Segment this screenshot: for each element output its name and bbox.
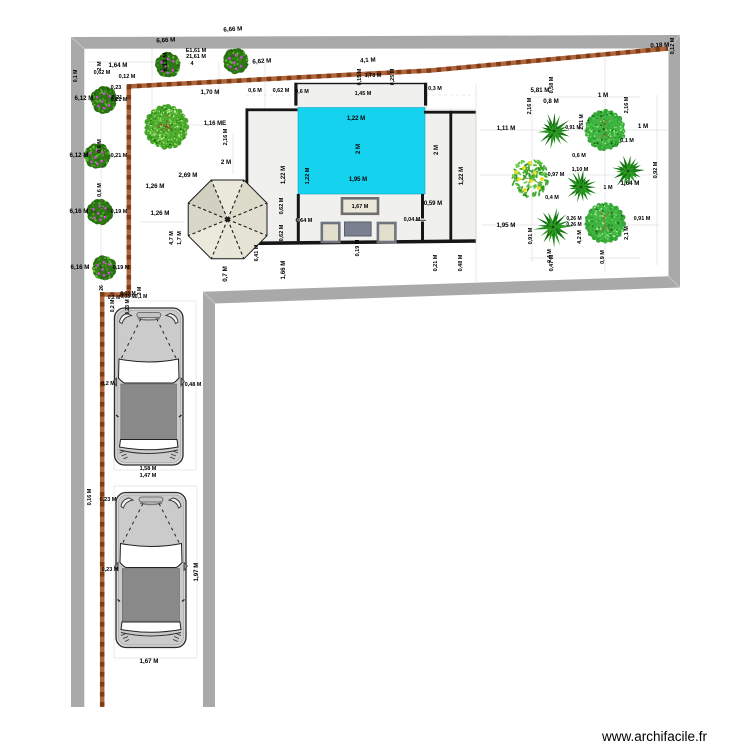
svg-text:2,16 M: 2,16 M [223,128,229,145]
svg-text:0,19 M: 0,19 M [111,209,128,215]
svg-text:1,22 M: 1,22 M [347,116,365,122]
svg-text:1,26 M: 1,26 M [151,210,170,217]
svg-text:0,92 M: 0,92 M [653,161,659,178]
svg-text:0,62 M: 0,62 M [94,70,111,76]
svg-text:0,4 M: 0,4 M [545,195,559,201]
svg-text:6,12 M: 6,12 M [70,152,89,159]
svg-text:0,91 M: 0,91 M [634,216,651,222]
svg-text:0,91 M: 0,91 M [528,227,534,244]
svg-text:0,6 M: 0,6 M [572,153,586,159]
svg-text:1,47 M: 1,47 M [140,473,157,479]
svg-text:0,97 M: 0,97 M [548,172,565,178]
svg-text:2,69 M: 2,69 M [179,172,198,179]
svg-text:1,70 M: 1,70 M [201,89,220,96]
svg-text:4,7 M: 4,7 M [169,231,175,245]
svg-text:0,58 M: 0,58 M [549,76,555,93]
svg-text:1,95 M: 1,95 M [349,177,367,183]
svg-text:0,2 M: 0,2 M [108,295,121,301]
svg-text:0,3 M: 0,3 M [428,86,442,92]
svg-text:1,26 M: 1,26 M [146,183,165,190]
svg-text:0,23 M: 0,23 M [125,299,131,314]
svg-text:0,2 M: 0,2 M [110,300,116,313]
svg-text:www.archifacile.fr: www.archifacile.fr [601,729,708,744]
svg-text:0,21 M: 0,21 M [111,153,128,159]
svg-text:1,22 M: 1,22 M [459,167,465,185]
svg-text:2,1 M: 2,1 M [624,226,630,240]
svg-text:0,7 M: 0,7 M [222,266,229,281]
svg-text:0,21 M: 0,21 M [111,97,128,103]
svg-text:0,19 M: 0,19 M [355,239,361,256]
svg-text:0,23 M: 0,23 M [102,567,119,573]
svg-text:21,61 M: 21,61 M [186,54,206,60]
svg-text:4,2 M: 4,2 M [577,230,583,244]
svg-text:6,62 M: 6,62 M [252,57,271,65]
svg-text:26: 26 [99,285,105,291]
svg-text:6,16 M: 6,16 M [70,208,89,215]
svg-text:0,6 M: 0,6 M [295,89,309,95]
svg-text:0,16 M: 0,16 M [87,488,93,505]
svg-text:1 M: 1 M [603,185,613,191]
svg-text:0,48 M: 0,48 M [185,382,202,388]
svg-text:1 M: 1 M [638,123,648,130]
svg-text:0,64 M: 0,64 M [296,218,313,224]
svg-text:0,6 M: 0,6 M [97,183,103,197]
svg-text:0,12 M: 0,12 M [119,74,136,80]
svg-text:0,23: 0,23 [111,85,122,91]
svg-text:0,62 M: 0,62 M [279,224,285,241]
svg-text:2,61 M: 2,61 M [579,114,585,129]
svg-text:6,66 M: 6,66 M [223,25,242,33]
svg-text:1,64 M: 1,64 M [109,62,128,69]
svg-text:1,95 M: 1,95 M [497,222,516,229]
svg-text:1,66 M: 1,66 M [280,261,287,280]
svg-text:0,2 M: 0,2 M [101,381,115,387]
svg-text:1,67 M: 1,67 M [140,658,159,665]
svg-text:5,81 M: 5,81 M [531,87,550,94]
svg-text:2,16 M: 2,16 M [527,97,533,114]
svg-text:4,1 M: 4,1 M [360,56,376,64]
svg-text:2 M: 2 M [434,145,440,155]
svg-text:1,97 M: 1,97 M [193,563,200,582]
svg-text:0,04 M: 0,04 M [404,217,421,223]
svg-text:1,11 M: 1,11 M [497,125,516,132]
svg-text:2 M: 2 M [356,144,362,154]
svg-text:1,7 M: 1,7 M [177,231,183,245]
svg-text:0,19 M: 0,19 M [113,265,130,271]
svg-text:0,48 M: 0,48 M [458,254,464,271]
svg-text:0,9 M: 0,9 M [600,250,606,264]
svg-text:6,12 M: 6,12 M [75,95,94,102]
svg-text:0,12 M: 0,12 M [670,37,676,54]
svg-text:1,64 M: 1,64 M [621,180,640,187]
svg-text:0,62 M: 0,62 M [279,197,285,214]
svg-text:1,16 ME: 1,16 ME [204,121,226,127]
svg-text:6,13 M: 6,13 M [162,53,169,72]
svg-text:6,41 M: 6,41 M [254,244,260,261]
svg-text:0,23 M: 0,23 M [100,497,117,503]
svg-text:1,22 M: 1,22 M [305,167,311,184]
svg-text:6,66 M: 6,66 M [156,36,175,44]
svg-text:1 M: 1 M [598,92,608,99]
svg-text:0,08 M: 0,08 M [120,294,135,300]
svg-text:0,62 M: 0,62 M [273,88,290,94]
svg-text:0,1 M: 0,1 M [135,294,148,300]
svg-text:6,16 M: 6,16 M [71,264,90,271]
svg-text:0,6 M: 0,6 M [248,88,262,94]
svg-text:1,10 M: 1,10 M [572,167,589,173]
svg-text:0,21 M: 0,21 M [433,254,439,271]
svg-text:0,8 M: 0,8 M [543,98,558,105]
svg-text:0,1 M: 0,1 M [73,70,79,83]
svg-text:0,1 M: 0,1 M [620,138,634,144]
svg-text:1,78 M: 1,78 M [365,73,382,79]
svg-text:0,25 M: 0,25 M [390,68,396,85]
svg-text:1,67 M: 1,67 M [352,204,369,210]
svg-text:1,22 M: 1,22 M [281,166,287,184]
svg-text:0,26 M: 0,26 M [566,222,581,228]
svg-text:1,58 M: 1,58 M [140,466,157,472]
svg-text:0,59 M: 0,59 M [424,201,442,207]
svg-text:0,6 M: 0,6 M [97,139,103,153]
svg-text:2 M: 2 M [221,159,231,166]
svg-text:1,45 M: 1,45 M [355,91,372,97]
svg-text:0,4 M: 0,4 M [547,249,553,263]
svg-text:0,18 M: 0,18 M [650,41,669,49]
svg-text:0,15 M: 0,15 M [357,68,363,85]
svg-text:2,16 M: 2,16 M [624,96,630,113]
